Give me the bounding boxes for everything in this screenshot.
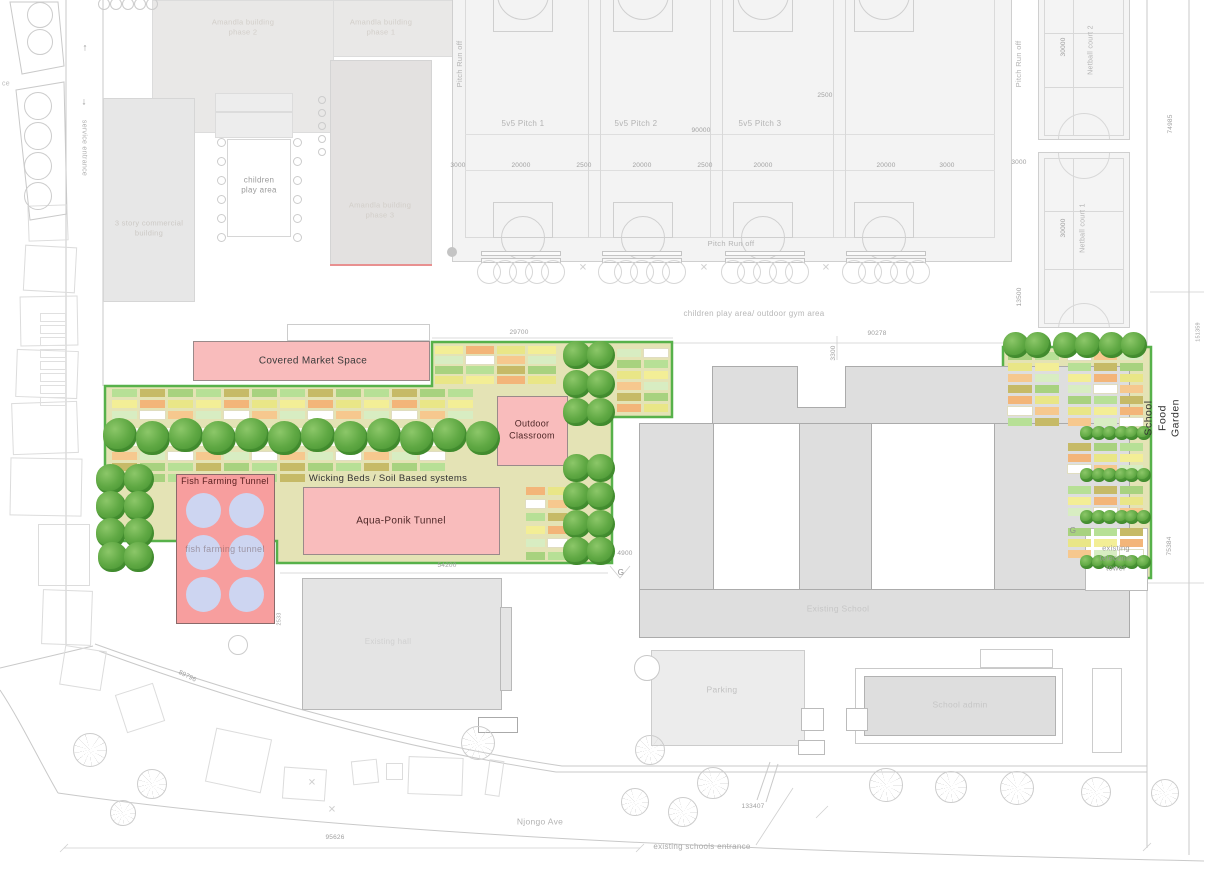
circle-outline <box>293 195 302 204</box>
circle-outline <box>228 635 248 655</box>
fish-tank <box>186 577 221 612</box>
arrow-down-icon: ↓ <box>81 96 86 109</box>
label-amandla-phase1: Amandla building phase 1 <box>350 17 412 37</box>
garden-bed <box>1008 396 1032 404</box>
street-tree-icon <box>935 771 967 803</box>
circle-outline <box>293 214 302 223</box>
garden-bed <box>1120 454 1143 462</box>
hatch-strip <box>40 325 66 334</box>
garden-bed <box>435 366 463 374</box>
dim-13500: 13500 <box>1016 287 1024 306</box>
garden-bed <box>617 393 641 401</box>
x-mark: ✕ <box>822 263 830 274</box>
plot-outline <box>407 756 463 796</box>
roadside-structure <box>1092 668 1122 753</box>
garden-bed <box>526 500 545 508</box>
street-tree-icon <box>869 768 903 802</box>
garden-bed <box>1120 396 1143 404</box>
label-aqua: Aqua-Ponik Tunnel <box>356 515 446 528</box>
garden-bed <box>308 463 333 471</box>
tree-icon <box>433 418 467 452</box>
tree-icon <box>587 510 615 538</box>
plot-outline <box>386 763 403 780</box>
garden-bed <box>1120 443 1143 451</box>
garden-bed <box>644 404 668 412</box>
hatch-strip <box>40 349 66 358</box>
garden-bed <box>644 360 668 368</box>
school-courtyard-2 <box>871 423 995 590</box>
garden-bed <box>1120 486 1143 494</box>
dim-90278: 90278 <box>867 330 886 338</box>
tree-icon <box>124 464 154 494</box>
label-existing-school: Existing School <box>807 603 870 614</box>
garden-bed <box>224 400 249 408</box>
small-block-1 <box>215 93 293 112</box>
garden-bed <box>448 400 473 408</box>
street-tree-icon <box>73 733 107 767</box>
label-outdoor-classroom: Outdoor Classroom <box>509 418 555 441</box>
tree-icon <box>169 418 203 452</box>
hall-step <box>500 607 512 691</box>
dim-2500-a: 2500 <box>576 162 591 170</box>
garden-bed <box>435 356 463 364</box>
garden-bed <box>168 452 193 460</box>
label-pitch-runoff-left: Pitch Run off <box>455 41 465 88</box>
tree-icon <box>235 418 269 452</box>
dim-30000-a: 30000 <box>1060 37 1068 56</box>
garden-bed <box>1120 363 1143 371</box>
tree-icon <box>136 421 170 455</box>
label-pitch-1: 5v5 Pitch 1 <box>502 119 545 129</box>
circle-outline <box>217 157 226 166</box>
street-tree-icon <box>1000 771 1034 805</box>
garden-bed <box>1068 418 1091 426</box>
garden-bed <box>1068 539 1091 547</box>
label-pitch-2: 5v5 Pitch 2 <box>615 119 658 129</box>
garden-bed <box>364 400 389 408</box>
dim-3000-b: 3000 <box>939 162 954 170</box>
garden-bed <box>644 382 668 390</box>
garden-bed <box>308 389 333 397</box>
street-tree-icon <box>110 800 136 826</box>
street-tree-icon <box>697 767 729 799</box>
pitch-divider <box>833 0 834 238</box>
dim-75384: 75384 <box>1166 536 1174 555</box>
garden-bed <box>435 376 463 384</box>
plot-outline <box>59 645 107 691</box>
garden-bed <box>1035 418 1059 426</box>
garden-bed <box>497 356 525 364</box>
label-pitch-runoff-bottom: Pitch Run off <box>708 239 755 249</box>
garden-bed <box>466 356 494 364</box>
garden-bed <box>497 346 525 354</box>
netball-marking <box>1044 33 1124 34</box>
garden-bed <box>1068 407 1091 415</box>
plot-outline <box>282 767 327 802</box>
garden-bed <box>526 513 545 521</box>
garden-bed <box>497 376 525 384</box>
circle-outline <box>217 176 226 185</box>
tree-icon <box>1121 332 1147 358</box>
hatch-strip <box>40 361 66 370</box>
garden-bed <box>1094 407 1117 415</box>
tree-icon <box>96 464 126 494</box>
label-fish-faint: fish farming tunnel <box>185 544 264 556</box>
circle-outline <box>318 135 326 143</box>
tree-icon <box>587 454 615 482</box>
garden-bed <box>644 371 668 379</box>
garden-bed <box>336 411 361 419</box>
field-dot <box>447 247 457 257</box>
garden-bed <box>617 404 641 412</box>
garden-bed <box>1068 486 1091 494</box>
dim-3000-netball: 3000 <box>1011 159 1026 167</box>
market-canopy-outline <box>287 324 430 341</box>
tree-icon <box>301 418 335 452</box>
street-tree-icon <box>461 726 495 760</box>
circle-outline <box>318 122 326 130</box>
circle-outline <box>27 29 53 55</box>
gate-marker-right: G <box>1070 526 1077 536</box>
tree-icon <box>268 421 302 455</box>
label-njongo-ave: Njongo Ave <box>517 816 563 827</box>
circle-outline <box>217 138 226 147</box>
plot-outline <box>23 245 77 294</box>
site-plan: Amandla building phase 2 Amandla buildin… <box>0 0 1206 880</box>
garden-bed <box>1008 363 1032 371</box>
garden-bed <box>224 452 249 460</box>
garden-bed <box>252 452 277 460</box>
garden-bed <box>1120 528 1143 536</box>
garden-bed <box>140 411 165 419</box>
garden-bed <box>112 452 137 460</box>
tree-icon <box>466 421 500 455</box>
garden-bed <box>420 400 445 408</box>
garden-bed <box>617 360 641 368</box>
garden-bed <box>1120 407 1143 415</box>
tree-icon <box>367 418 401 452</box>
field-hline-2 <box>465 170 995 171</box>
garden-bed <box>1120 385 1143 393</box>
garden-bed <box>196 389 221 397</box>
parking-area <box>651 650 805 746</box>
street-tree-icon <box>1151 779 1179 807</box>
garden-bed <box>168 463 193 471</box>
garden-bed <box>280 411 305 419</box>
garden-bed <box>224 463 249 471</box>
garden-bed <box>1035 385 1059 393</box>
garden-bed <box>1120 497 1143 505</box>
tree-icon <box>587 370 615 398</box>
garden-bed <box>1008 407 1032 415</box>
garden-bed <box>528 376 556 384</box>
garden-bed <box>617 382 641 390</box>
circle-outline <box>24 182 52 210</box>
garden-bed <box>1068 454 1091 462</box>
bleacher-tree-icon <box>906 260 930 284</box>
garden-bed <box>1094 396 1117 404</box>
tree-icon <box>587 537 615 565</box>
plot-outline <box>27 204 68 241</box>
garden-bed <box>196 463 221 471</box>
garden-bed <box>392 411 417 419</box>
admin-thin-wing <box>980 649 1053 668</box>
dim-95626: 95626 <box>325 834 344 842</box>
circle-outline <box>24 92 52 120</box>
circle-outline <box>27 2 53 28</box>
garden-bed <box>1035 396 1059 404</box>
tree-icon <box>587 341 615 369</box>
dim-2533: 2533 <box>276 612 283 625</box>
garden-bed <box>1035 374 1059 382</box>
bush-icon <box>1137 510 1151 524</box>
dim-30000-b: 30000 <box>1060 218 1068 237</box>
bleacher-tree-icon <box>785 260 809 284</box>
garden-bed <box>364 463 389 471</box>
label-commercial: 3 story commercial building <box>115 218 183 238</box>
garden-bed <box>420 463 445 471</box>
circle-outline <box>318 109 326 117</box>
garden-bed <box>1008 418 1032 426</box>
dim-20000-c: 20000 <box>753 162 772 170</box>
label-edge-fragment: ce <box>2 79 10 88</box>
garden-bed <box>280 400 305 408</box>
gate-marker-left: G <box>618 568 625 578</box>
garden-bed <box>196 411 221 419</box>
garden-bed <box>528 346 556 354</box>
garden-bed <box>1094 497 1117 505</box>
circle-outline <box>318 148 326 156</box>
label-school-admin: School admin <box>932 699 987 710</box>
plot-outline <box>205 728 272 794</box>
garden-bed <box>252 389 277 397</box>
dim-90000: 90000 <box>691 127 710 135</box>
circle-outline <box>293 138 302 147</box>
hatch-strip <box>40 373 66 382</box>
dim-3300: 3300 <box>830 345 838 360</box>
garden-bed <box>168 389 193 397</box>
garden-bed <box>466 376 494 384</box>
garden-bed <box>1094 418 1117 426</box>
label-schools-entrance: existing schools entrance <box>653 842 750 852</box>
garden-bed <box>280 474 305 482</box>
garden-bed <box>1094 374 1117 382</box>
circle-outline <box>217 233 226 242</box>
pitch-divider <box>845 0 846 238</box>
circle-outline <box>24 152 52 180</box>
x-mark: ✕ <box>328 805 336 816</box>
garden-bed <box>1120 374 1143 382</box>
dim-20000-b: 20000 <box>632 162 651 170</box>
garden-bed <box>1094 528 1117 536</box>
garden-bed <box>252 463 277 471</box>
garden-bed <box>1094 454 1117 462</box>
street-tree-icon <box>621 788 649 816</box>
garden-bed <box>140 389 165 397</box>
street-tree-icon <box>635 735 665 765</box>
garden-bed <box>364 389 389 397</box>
garden-bed <box>392 389 417 397</box>
plot-outline <box>9 457 82 516</box>
hatch-strip <box>40 385 66 394</box>
x-mark: ✕ <box>700 263 708 274</box>
garden-bed <box>336 463 361 471</box>
tree-icon <box>1025 332 1051 358</box>
dim-20000-a: 20000 <box>511 162 530 170</box>
circle-outline <box>293 176 302 185</box>
school-notch <box>797 366 846 408</box>
garden-bed <box>168 400 193 408</box>
garden-bed <box>526 539 545 547</box>
small-block-2 <box>215 112 293 138</box>
hatch-strip <box>40 337 66 346</box>
street-tree-icon <box>668 797 698 827</box>
label-school-food-garden: School Food Garden <box>1143 397 1184 440</box>
label-parking: Parking <box>707 684 738 695</box>
bleacher-tree-icon <box>662 260 686 284</box>
garden-bed <box>1068 497 1091 505</box>
x-mark: ✕ <box>308 778 316 789</box>
tree-icon <box>400 421 434 455</box>
garden-bed <box>1035 407 1059 415</box>
circle-outline <box>24 122 52 150</box>
garden-bed <box>1068 363 1091 371</box>
label-children-play: children play area <box>241 176 277 197</box>
garden-bed <box>1094 443 1117 451</box>
dim-20000-d: 20000 <box>876 162 895 170</box>
circle-outline <box>217 214 226 223</box>
garden-bed <box>617 349 641 357</box>
label-wicking: Wicking Beds / Soil Based systems <box>309 473 467 485</box>
tree-icon <box>202 421 236 455</box>
garden-bed <box>392 463 417 471</box>
garden-bed <box>252 400 277 408</box>
garden-bed <box>644 349 668 357</box>
pitch-divider <box>600 0 601 238</box>
bush-icon <box>1137 468 1151 482</box>
garden-bed <box>1068 396 1091 404</box>
garden-bed <box>1120 418 1143 426</box>
dim-3000-a: 3000 <box>450 162 465 170</box>
dim-151359: 151359 <box>1195 322 1202 342</box>
garden-bed <box>1068 443 1091 451</box>
circle-outline <box>318 96 326 104</box>
bleacher <box>602 251 682 256</box>
garden-bed <box>448 389 473 397</box>
circle-outline <box>293 157 302 166</box>
garden-bed <box>617 371 641 379</box>
netball-marking <box>1044 87 1124 88</box>
garden-bed <box>526 487 545 495</box>
fish-tank <box>229 577 264 612</box>
tree-icon <box>587 482 615 510</box>
tree-icon <box>587 398 615 426</box>
garden-bed <box>280 389 305 397</box>
garden-bed <box>1008 385 1032 393</box>
garden-bed <box>308 400 333 408</box>
garden-bed <box>308 452 333 460</box>
dim-133407: 133407 <box>742 803 765 811</box>
plot-outline <box>351 759 379 786</box>
garden-bed <box>224 389 249 397</box>
entry-structure-1 <box>801 708 824 731</box>
building-commercial <box>103 98 195 302</box>
dim-4900: 4900 <box>617 550 632 558</box>
tree-icon <box>334 421 368 455</box>
garden-bed <box>112 389 137 397</box>
plot-outline <box>11 401 79 455</box>
garden-bed <box>280 463 305 471</box>
garden-bed <box>336 389 361 397</box>
tree-icon <box>124 491 154 521</box>
label-amandla-phase2: Amandla building phase 2 <box>212 17 274 37</box>
netball-marking <box>1044 269 1124 270</box>
garden-bed <box>140 400 165 408</box>
label-netball-1: Netball court 1 <box>1078 203 1087 253</box>
label-fish-title: Fish Farming Tunnel <box>181 476 269 488</box>
garden-bed <box>644 393 668 401</box>
label-play-gym: children play area/ outdoor gym area <box>683 309 824 319</box>
dim-74985: 74985 <box>1167 114 1175 133</box>
garden-bed <box>526 526 545 534</box>
label-existing-hall: Existing hall <box>365 637 412 647</box>
dim-2500-b: 2500 <box>697 162 712 170</box>
garden-bed <box>1094 363 1117 371</box>
entry-structure-2 <box>846 708 868 731</box>
tree-icon <box>96 491 126 521</box>
arrow-up-icon: ↑ <box>82 42 87 55</box>
dim-29700: 29700 <box>509 329 528 337</box>
garden-bed <box>497 366 525 374</box>
hatch-strip <box>40 313 66 322</box>
bleacher <box>846 251 926 256</box>
garden-bed <box>1035 363 1059 371</box>
garden-bed <box>420 411 445 419</box>
garden-bed <box>112 400 137 408</box>
tree-icon <box>124 542 154 572</box>
garden-bed <box>196 400 221 408</box>
garden-bed <box>1068 385 1091 393</box>
bleacher <box>725 251 805 256</box>
garden-bed <box>420 389 445 397</box>
garden-bed <box>466 366 494 374</box>
netball-court-2 <box>1038 0 1130 140</box>
tree-icon <box>1075 332 1101 358</box>
parking-entrance-arc <box>634 655 660 681</box>
pitch-divider <box>588 0 589 238</box>
garden-bed <box>466 346 494 354</box>
fish-tank <box>186 493 221 528</box>
label-service-entrance: service entrance <box>79 120 88 176</box>
garden-bed <box>435 346 463 354</box>
garden-bed <box>392 400 417 408</box>
label-netball-2: Netball court 2 <box>1086 25 1095 75</box>
street-tree-icon <box>1081 777 1111 807</box>
label-telecoms: existing telecoms tower <box>1100 543 1132 572</box>
plot-outline <box>41 589 93 646</box>
hatch-strip <box>40 397 66 406</box>
garden-bed <box>336 400 361 408</box>
garden-bed <box>1008 374 1032 382</box>
tree-icon <box>103 418 137 452</box>
street-tree-icon <box>137 769 167 799</box>
dim-2500-top: 2500 <box>817 92 832 100</box>
label-amandla-phase3: Amandla building phase 3 <box>349 200 411 220</box>
bleacher <box>481 251 561 256</box>
garden-bed <box>364 452 389 460</box>
garden-bed <box>528 366 556 374</box>
entry-structure-3 <box>798 740 825 755</box>
